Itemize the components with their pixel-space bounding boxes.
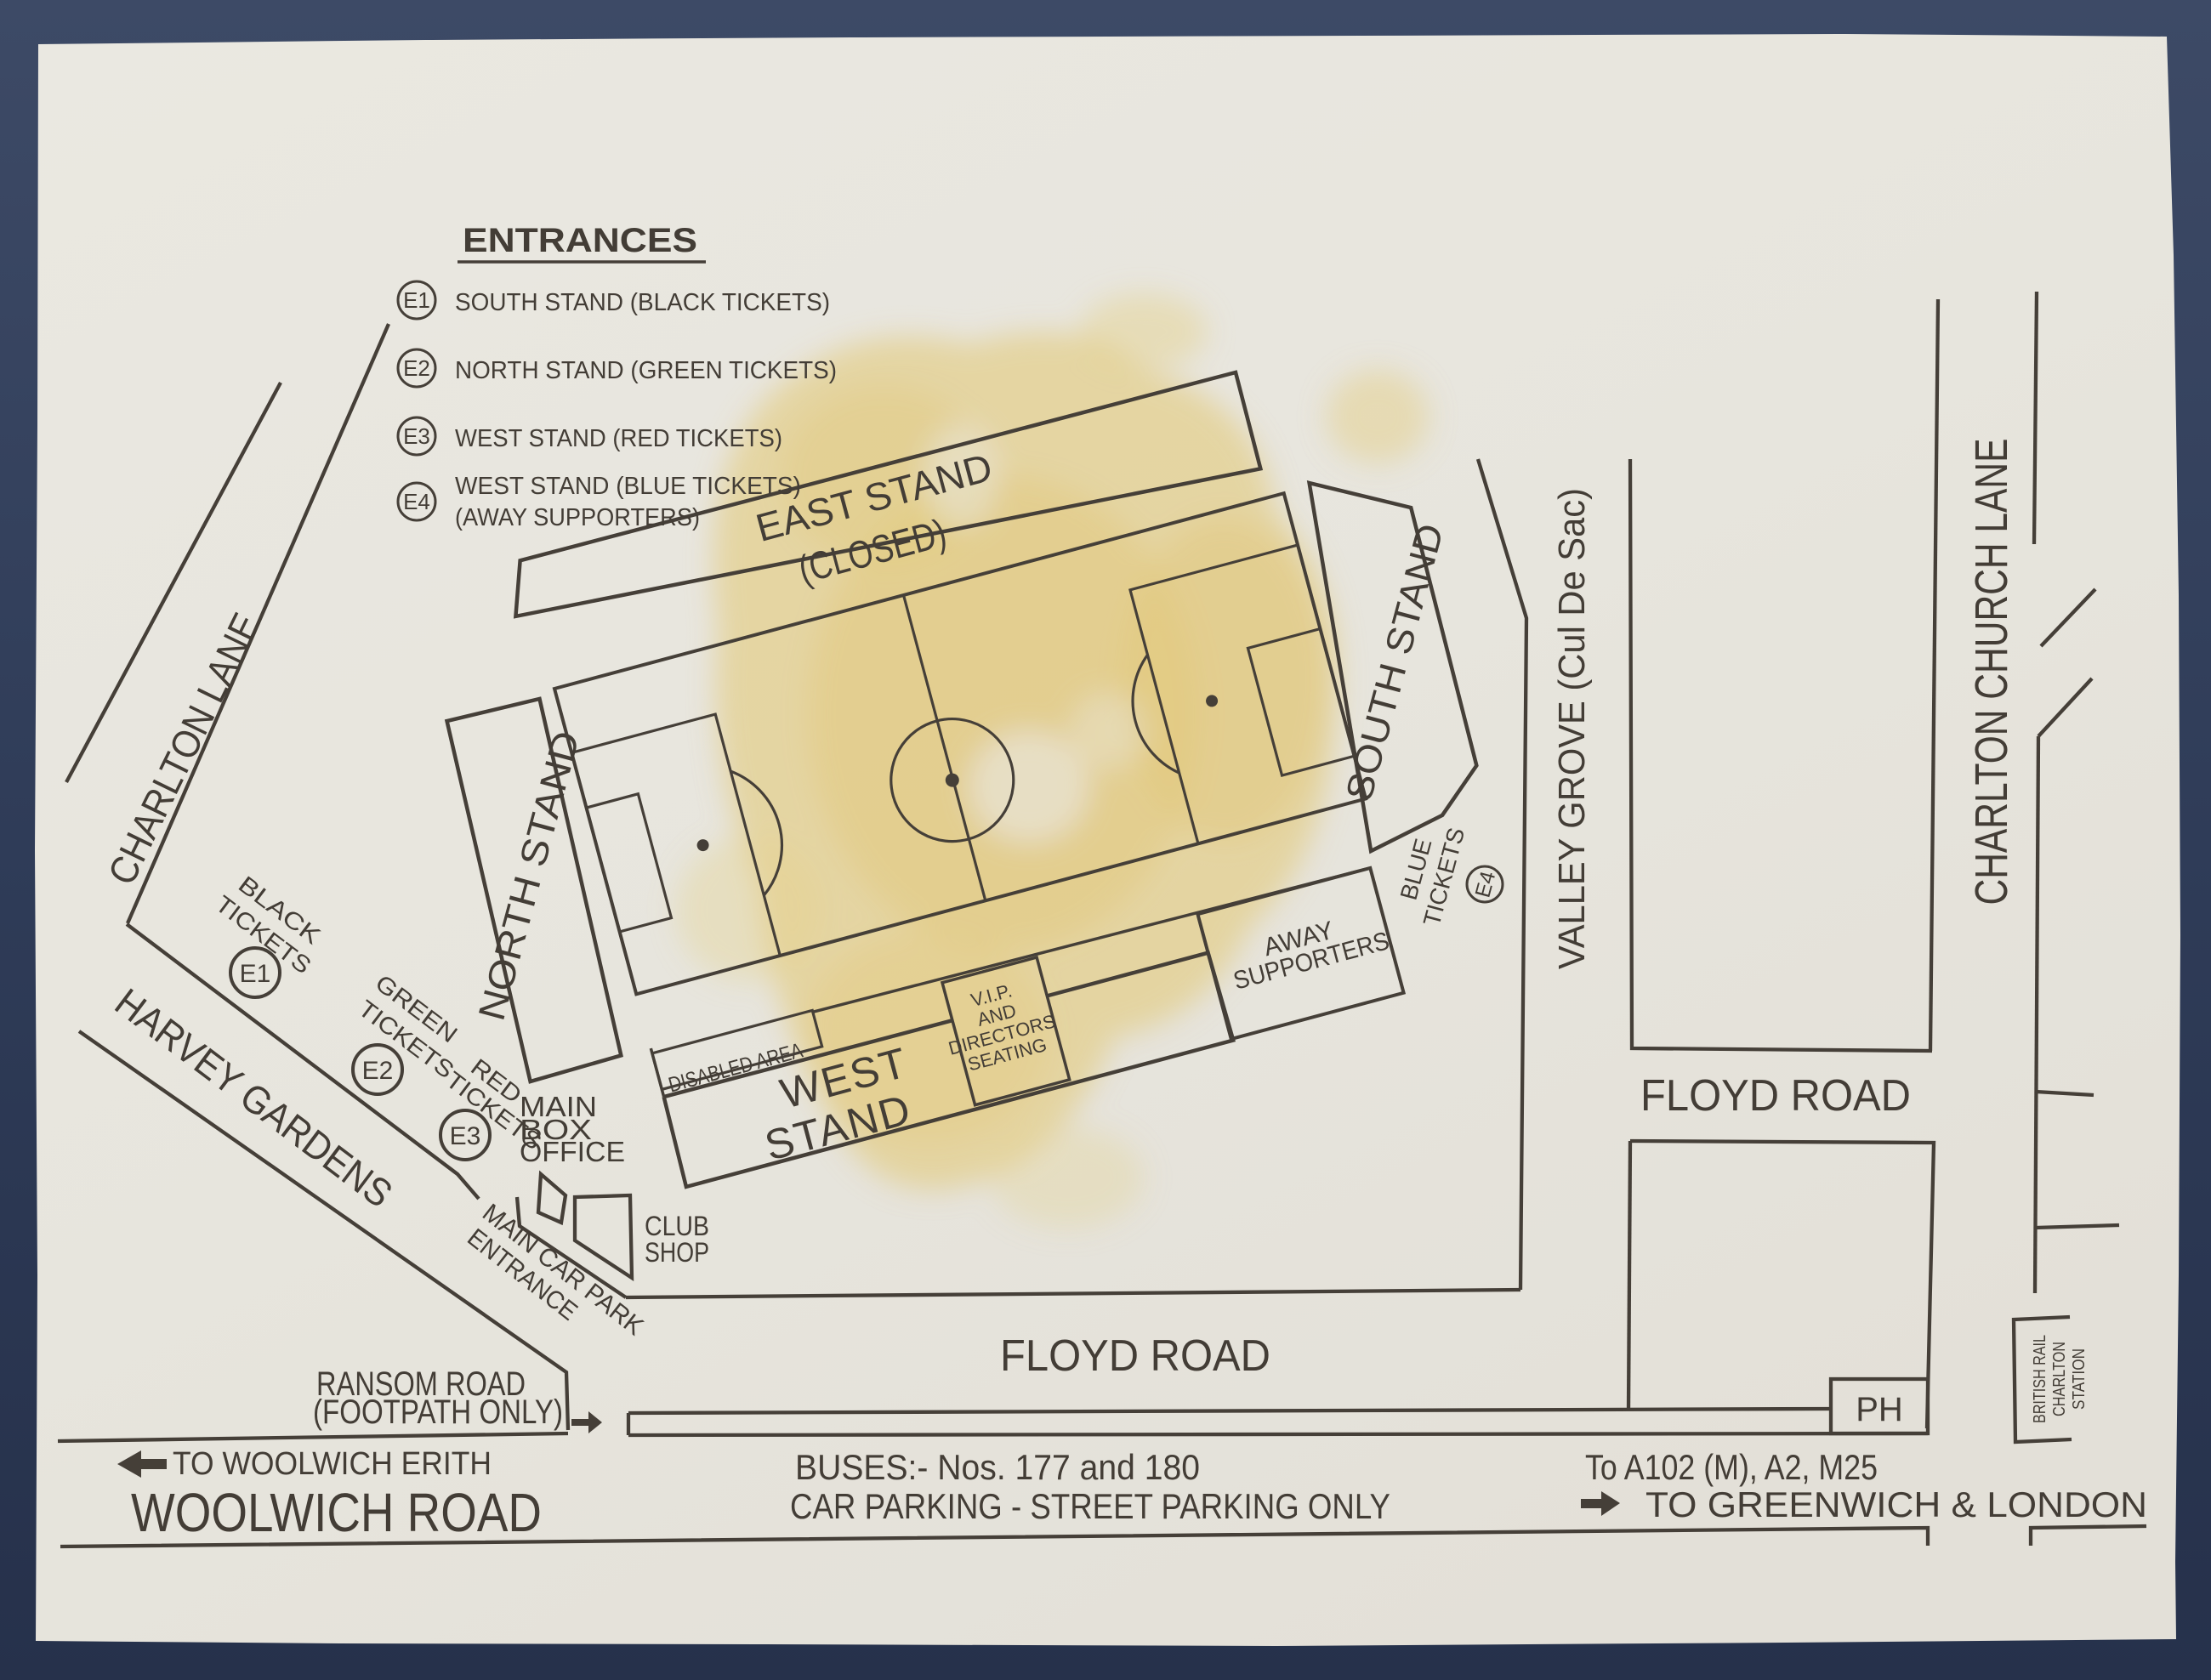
svg-text:E2: E2 [403,355,430,381]
svg-text:E2: E2 [362,1057,394,1085]
svg-text:(FOOTPATH ONLY): (FOOTPATH ONLY) [313,1393,563,1431]
svg-text:E1: E1 [240,960,271,988]
svg-text:WEST STAND (RED TICKETS): WEST STAND (RED TICKETS) [455,425,782,452]
svg-text:TO GREENWICH & LONDON: TO GREENWICH & LONDON [1645,1484,2147,1524]
svg-text:PH: PH [1856,1391,1903,1428]
svg-text:BUSES:- Nos. 177 and 180: BUSES:- Nos. 177 and 180 [795,1447,1200,1487]
svg-text:ENTRANCES: ENTRANCES [463,222,697,259]
svg-text:(AWAY SUPPORTERS): (AWAY SUPPORTERS) [455,504,700,531]
svg-text:BRITISH RAIL: BRITISH RAIL [2031,1335,2049,1423]
svg-text:VALLEY GROVE (Cul De Sac): VALLEY GROVE (Cul De Sac) [1551,488,1593,969]
svg-text:SHOP: SHOP [645,1237,709,1268]
svg-text:TO WOOLWICH ERITH: TO WOOLWICH ERITH [173,1446,492,1482]
svg-text:WEST STAND (BLUE TICKETS): WEST STAND (BLUE TICKETS) [455,473,801,500]
svg-text:NORTH STAND (GREEN TICKETS): NORTH STAND (GREEN TICKETS) [455,357,837,384]
svg-text:E3: E3 [450,1122,481,1150]
svg-text:To A102 (M), A2, M25: To A102 (M), A2, M25 [1585,1447,1878,1487]
svg-text:SOUTH STAND (BLACK TICKETS): SOUTH STAND (BLACK TICKETS) [455,289,830,316]
svg-text:E1: E1 [403,287,430,313]
svg-text:OFFICE: OFFICE [520,1136,625,1167]
svg-text:FLOYD ROAD: FLOYD ROAD [1000,1331,1270,1381]
svg-text:WOOLWICH ROAD: WOOLWICH ROAD [131,1482,542,1543]
svg-text:STATION: STATION [2070,1348,2089,1410]
svg-text:E4: E4 [403,489,430,514]
svg-text:E3: E3 [403,423,430,449]
svg-text:CAR PARKING - STREET PARKING O: CAR PARKING - STREET PARKING ONLY [790,1486,1390,1526]
svg-text:FLOYD ROAD: FLOYD ROAD [1640,1071,1911,1121]
svg-text:CHARLTON: CHARLTON [2050,1342,2069,1416]
svg-text:CHARLTON CHURCH LANE: CHARLTON CHURCH LANE [1966,439,2017,905]
